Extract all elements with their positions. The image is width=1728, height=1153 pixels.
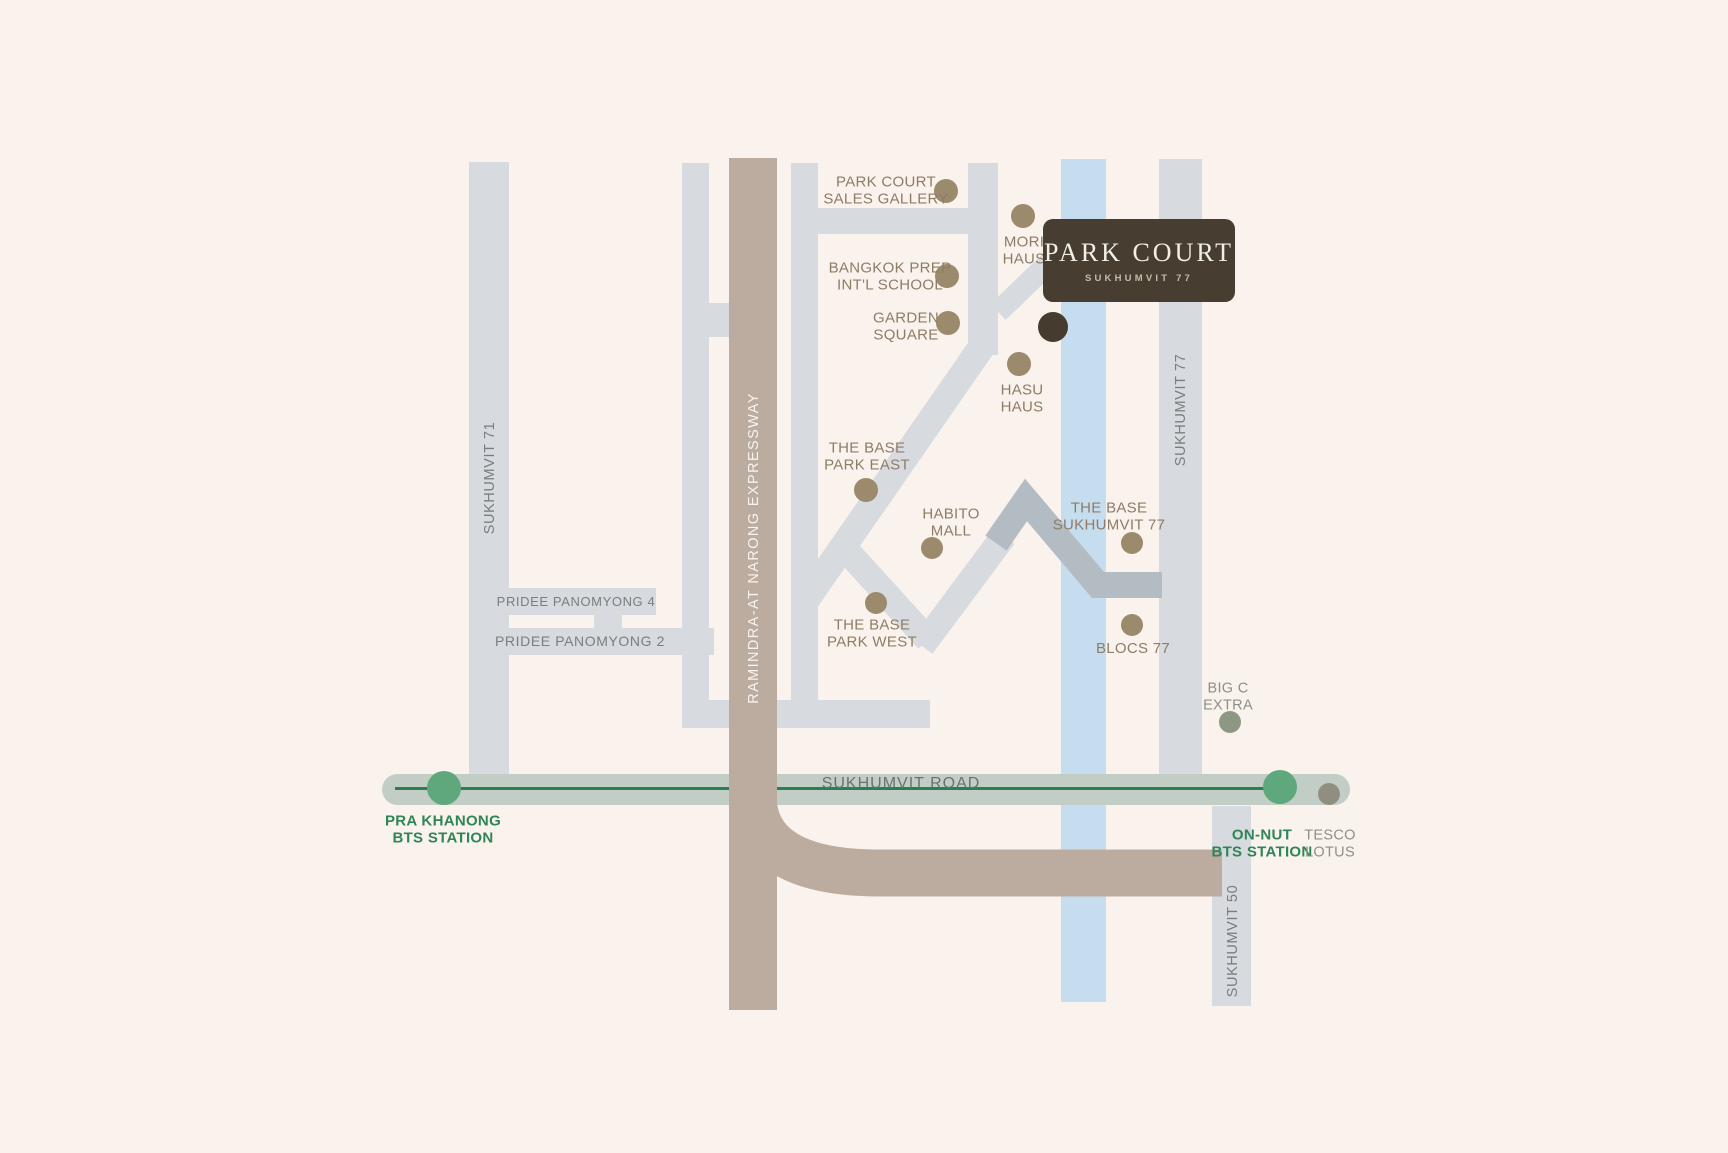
road-label-pridee-panomyong-2: PRIDEE PANOMYONG 2 <box>495 633 665 650</box>
poi-label-tesco-lotus: TESCO LOTUS <box>1304 828 1355 861</box>
road-label-sukhumvit-road: SUKHUMVIT ROAD <box>822 776 981 793</box>
poi-label-habito-mall: HABITO MALL <box>922 507 979 540</box>
road-label-pridee-panomyong-4: PRIDEE PANOMYONG 4 <box>497 594 656 611</box>
road-label-sukhumvit-71: SUKHUMVIT 71 <box>482 422 499 535</box>
road-expressway-branch <box>753 795 1222 873</box>
poi-dot-blocs-77 <box>1121 614 1143 636</box>
poi-label-hasu-haus: HASU HAUS <box>1001 383 1044 416</box>
location-map: PARK COURT SALES GALLERY MORI HAUS BANGK… <box>0 0 1728 1153</box>
station-dot-on-nut <box>1263 770 1297 804</box>
road-pridee-connector <box>594 615 622 630</box>
poi-label-the-base-sukhumvit-77: THE BASE SUKHUMVIT 77 <box>1053 501 1166 534</box>
poi-dot-tesco-lotus <box>1318 783 1340 805</box>
poi-dot-the-base-park-east <box>854 478 878 502</box>
poi-label-mori-haus: MORI HAUS <box>1003 235 1046 268</box>
project-dot-park-court <box>1038 312 1068 342</box>
poi-dot-mori-haus <box>1011 204 1035 228</box>
poi-label-park-court-sales-gallery: PARK COURT SALES GALLERY <box>823 175 948 208</box>
poi-label-big-c-extra: BIG C EXTRA <box>1203 681 1253 714</box>
poi-dot-big-c-extra <box>1219 711 1241 733</box>
poi-dot-habito-mall <box>921 537 943 559</box>
road-soi-vertical <box>791 163 818 714</box>
brand-subtitle: SUKHUMVIT 77 <box>1085 273 1193 284</box>
poi-dot-the-base-park-west <box>865 592 887 614</box>
poi-dot-hasu-haus <box>1007 352 1031 376</box>
poi-dot-garden-square <box>936 311 960 335</box>
road-sales-gallery-horizontal <box>791 208 998 234</box>
road-label-expressway: RAMINDRA-AT NARONG EXPRESSWAY <box>746 392 763 704</box>
poi-label-bangkok-prep: BANGKOK PREP INT'L SCHOOL <box>829 261 952 294</box>
road-center-vertical <box>968 163 998 355</box>
poi-label-garden-square: GARDEN SQUARE <box>873 311 939 344</box>
poi-label-blocs-77: BLOCS 77 <box>1096 641 1170 658</box>
station-label-on-nut: ON-NUT BTS STATION <box>1211 828 1312 861</box>
brand-card: PARK COURT SUKHUMVIT 77 <box>1043 219 1235 302</box>
road-label-sukhumvit-50: SUKHUMVIT 50 <box>1225 885 1242 998</box>
poi-label-the-base-park-west: THE BASE PARK WEST <box>827 618 917 651</box>
poi-dot-the-base-sukhumvit-77 <box>1121 532 1143 554</box>
station-label-pra-khanong: PRA KHANONG BTS STATION <box>385 814 501 847</box>
station-dot-pra-khanong <box>427 771 461 805</box>
brand-title: PARK COURT <box>1044 238 1234 268</box>
road-label-sukhumvit-77: SUKHUMVIT 77 <box>1173 354 1190 467</box>
poi-label-the-base-park-east: THE BASE PARK EAST <box>824 441 910 474</box>
